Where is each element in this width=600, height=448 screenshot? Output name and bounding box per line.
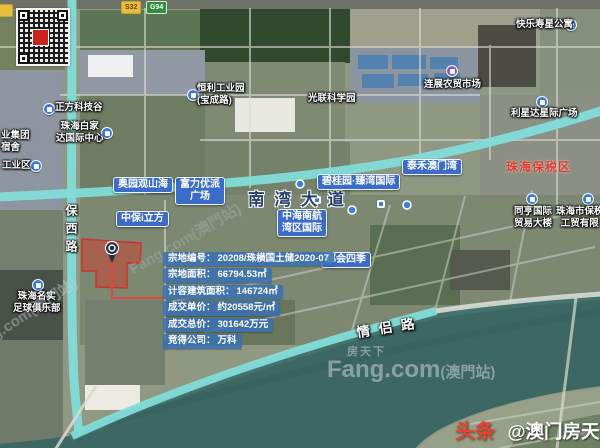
poi-icon — [30, 160, 42, 172]
info-label: 计容建筑面积： — [168, 286, 235, 297]
byline: 头条 @澳门房天下 — [455, 415, 600, 444]
qr-finder-icon — [57, 10, 68, 21]
road-label-baoxilu: 保西路 — [63, 204, 80, 258]
info-label: 宗地面积： — [168, 269, 216, 280]
poi-guanglian: 光联科学园 — [308, 93, 356, 105]
info-value: 301642万元 — [218, 319, 269, 330]
poi-gongyequ: 工业区 — [2, 160, 31, 172]
info-label: 宗地编号： — [168, 253, 216, 264]
info-row-floor-area: 计容建筑面积：146724㎡ — [163, 285, 283, 299]
info-value: 146724㎡ — [237, 286, 278, 297]
info-label: 成交单价： — [168, 302, 216, 313]
road-badge-national: G94 — [146, 1, 167, 14]
map-label-zhonghai: 中海南航 湾区国际 — [277, 209, 327, 237]
poi-gongmao-line2: 工贸有限 — [556, 218, 600, 230]
qr-center-logo — [32, 29, 49, 46]
fang-watermark-site: (澳門站) — [440, 364, 495, 381]
parcel-info-panel: 宗地编号：20208/珠横国土储2020-07 宗地面积：66794.53㎡ 计… — [163, 252, 334, 351]
road-badge-corner — [0, 4, 13, 17]
qr-code — [16, 8, 70, 66]
poi-tongheng-line1: 同亨国际 — [514, 206, 552, 218]
poi-icon — [582, 193, 594, 205]
bus-stop-icon — [377, 200, 385, 208]
map-label-aoyuan: 奥园观山海 — [113, 177, 173, 193]
map-label-zhonghai-line1: 中海南航 — [282, 211, 322, 223]
byline-account: @澳门房天下 — [507, 421, 600, 442]
info-row-parcel-number: 宗地编号：20208/珠横国土储2020-07 — [163, 252, 334, 266]
info-value: 20208/珠横国土储2020-07 — [218, 253, 329, 264]
map-label-biguiyuan: 碧桂园·臻湾国际 — [317, 174, 400, 190]
map-label-taihe: 泰禾澳门湾 — [402, 159, 462, 175]
poi-icon — [526, 193, 538, 205]
poi-gongmao-line1: 珠海市保税 — [556, 206, 600, 218]
info-label: 成交总价： — [168, 319, 216, 330]
info-row-total-price: 成交总价：301642万元 — [163, 318, 273, 332]
byline-brand: 头条 — [455, 421, 495, 443]
fang-watermark-en: Fang.com — [327, 356, 440, 383]
map-label-fuli-line1: 富力优派 — [180, 179, 220, 191]
poi-baijia-line2: 达国际中心 — [56, 133, 104, 145]
poi-lixingda: 利星达星际广场 — [511, 108, 578, 120]
map-label-zhongbao: 中保i立方 — [116, 211, 169, 227]
poi-baijia: 珠海白家 达国际中心 — [56, 121, 104, 145]
poi-lianzhan: 连展农贸市场 — [424, 79, 481, 91]
poi-icon-market — [446, 65, 458, 77]
fang-watermark: 房天下 Fang.com(澳門站) — [327, 347, 495, 382]
poi-baoshui-zone: 珠海保税区 — [506, 160, 571, 175]
info-label: 竞得公司： — [168, 335, 216, 346]
poi-zhengfang: 正方科技谷 — [55, 102, 103, 114]
road-badge-provincial: S32 — [121, 1, 141, 14]
info-value: 66794.53㎡ — [218, 269, 267, 280]
info-row-parcel-area: 宗地面积：66794.53㎡ — [163, 268, 272, 282]
poi-hengli: 恒利工业园 (宝成路) — [197, 83, 245, 107]
screenshot-root: S32 G94 保西路 南湾大道 情侣路 奥园观山海 富力优派 广场 中保i立方… — [0, 0, 600, 448]
qr-finder-icon — [18, 10, 29, 21]
info-row-unit-price: 成交单价：约20558元/㎡ — [163, 301, 280, 315]
info-row-winner: 竞得公司：万科 — [163, 334, 242, 348]
poi-kuaile: 快乐寿星公寓 — [516, 19, 573, 31]
qr-finder-icon — [18, 53, 29, 64]
info-value: 万科 — [218, 335, 237, 346]
map-label-fuli-line2: 广场 — [180, 191, 220, 203]
poi-icon — [536, 96, 548, 108]
poi-baijia-line1: 珠海白家 — [56, 121, 104, 133]
poi-tongheng: 同亨国际 贸易大楼 — [514, 206, 552, 230]
poi-yejituan: 业集团 宿舍 — [1, 130, 30, 154]
map-label-zhonghai-line2: 湾区国际 — [282, 223, 322, 235]
poi-icon — [43, 103, 55, 115]
poi-hengli-line2: (宝成路) — [197, 95, 245, 107]
poi-gongmao: 珠海市保税 工贸有限 — [556, 206, 600, 230]
poi-yejituan-line1: 业集团 — [1, 130, 30, 142]
info-value: 约20558元/㎡ — [218, 302, 276, 313]
poi-hengli-line1: 恒利工业园 — [197, 83, 245, 95]
map-label-fuli: 富力优派 广场 — [175, 177, 225, 205]
poi-tongheng-line2: 贸易大楼 — [514, 218, 552, 230]
poi-yejituan-line2: 宿舍 — [1, 142, 30, 154]
